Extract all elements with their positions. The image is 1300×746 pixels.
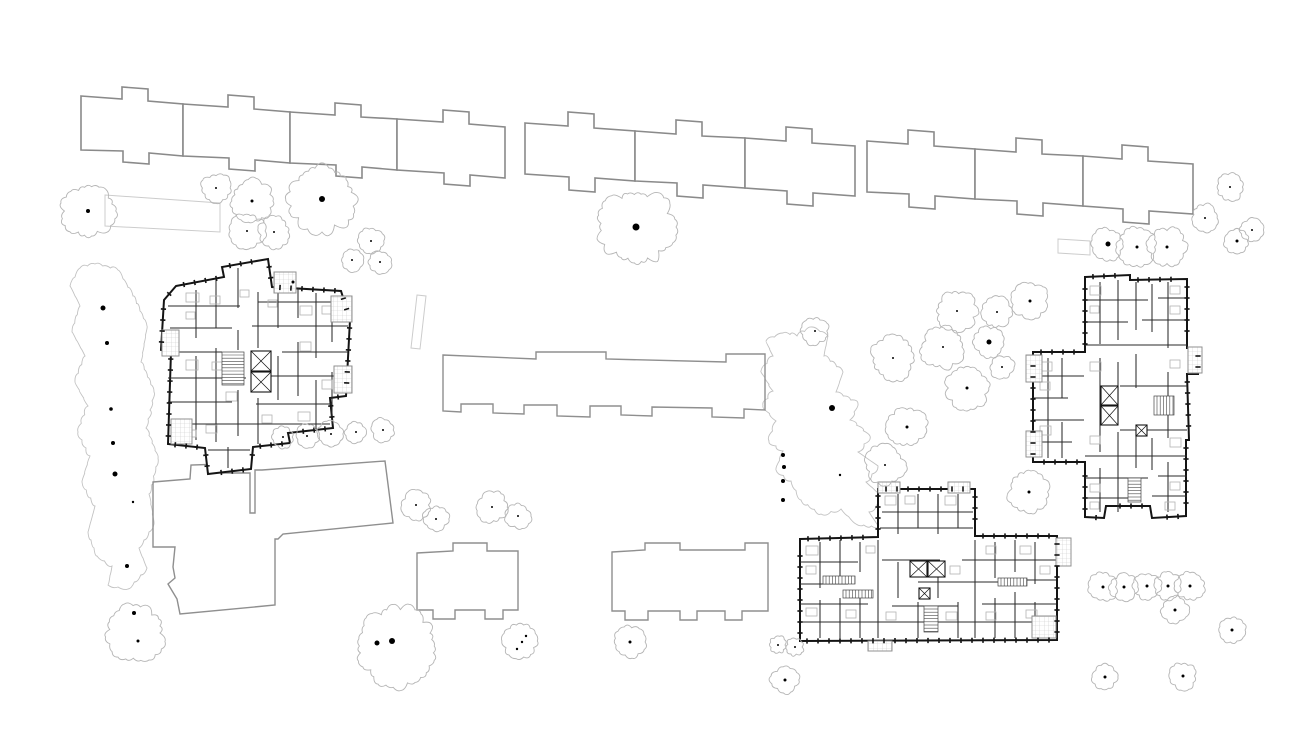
tree-trunk-dot	[942, 346, 944, 348]
shrub-trunk-dot	[105, 341, 109, 345]
window-tick	[329, 417, 334, 418]
balcony-grid	[1026, 355, 1042, 382]
tree-trunk-dot	[966, 387, 969, 390]
tree-trunk-dot	[629, 641, 632, 644]
window-tick	[175, 442, 176, 447]
window-tick	[205, 278, 206, 283]
tree-trunk-dot	[906, 426, 909, 429]
tree-trunk-dot	[814, 330, 816, 332]
tree-trunk-dot	[330, 433, 332, 435]
west-floor-plan	[159, 259, 352, 475]
balcony-grid	[1032, 616, 1056, 638]
pergola-outline	[105, 195, 220, 232]
tree-trunk-dot	[1229, 186, 1231, 188]
balcony-grid	[334, 366, 352, 393]
tree-trunk-dot	[1174, 609, 1177, 612]
tree-trunk-dot	[415, 504, 417, 506]
trunk-dot	[375, 641, 380, 646]
window-tick	[205, 466, 210, 467]
tree-trunk-dot	[351, 259, 353, 261]
trunk-dot	[292, 281, 295, 284]
shrub-trunk-dot	[111, 441, 115, 445]
tree-canopy	[357, 604, 435, 691]
trunk-dot	[521, 641, 523, 643]
context-building	[397, 110, 505, 186]
tree-trunk-dot	[86, 209, 90, 213]
site-plan-svg	[0, 0, 1300, 746]
tree-trunk-dot	[633, 224, 640, 231]
tree-trunk-dot	[382, 429, 384, 431]
tree-trunk-dot	[306, 435, 308, 437]
tree-trunk-dot	[1028, 491, 1031, 494]
shrub-trunk-dot	[839, 474, 841, 476]
tree-trunk-dot	[273, 231, 275, 233]
building-outline	[153, 461, 393, 614]
tree-trunk-dot	[517, 515, 519, 517]
tree-trunk-dot	[215, 187, 217, 189]
shrub-trunk-dot	[781, 453, 785, 457]
context-building	[975, 138, 1083, 216]
window-tick	[314, 428, 315, 433]
balcony-grid	[171, 419, 192, 444]
tree-trunk-dot	[1251, 229, 1253, 231]
window-tick	[282, 441, 283, 446]
tree-trunk-dot	[1231, 629, 1234, 632]
tree-trunk-dot	[1123, 586, 1126, 589]
window-tick	[303, 429, 304, 434]
site-plan-canvas	[0, 0, 1300, 746]
trunk-dot	[132, 611, 136, 615]
window-tick	[240, 261, 241, 266]
context-buildings-layer	[81, 87, 1193, 224]
tree-trunk-dot	[884, 464, 886, 466]
shrub-trunk-dot	[782, 465, 786, 469]
balcony-grid	[1026, 431, 1042, 457]
window-tick	[325, 426, 326, 431]
window-tick	[251, 259, 252, 264]
shrub-trunk-dot	[101, 306, 106, 311]
context-building	[525, 112, 635, 192]
tree-trunk-dot	[355, 431, 357, 433]
building-outline	[612, 543, 768, 620]
tree-trunk-dot	[794, 646, 796, 648]
building-outline	[417, 543, 518, 619]
tree-trunk-dot	[784, 679, 787, 682]
window-tick	[183, 282, 184, 287]
tree-trunk-dot	[1189, 585, 1192, 588]
tree-trunk-dot	[1166, 246, 1169, 249]
window-tick	[197, 445, 198, 450]
tree-canopy	[501, 623, 538, 659]
tree-trunk-dot	[996, 311, 998, 313]
window-tick	[338, 394, 339, 399]
window-tick	[328, 406, 333, 407]
tree-trunk-dot	[1136, 246, 1139, 249]
stair	[998, 578, 1027, 586]
pergola-outline	[1058, 239, 1090, 255]
stair	[1128, 478, 1141, 502]
context-building	[81, 87, 183, 164]
stair	[222, 352, 244, 385]
tree-trunk-dot	[251, 200, 254, 203]
tree-trunk-dot	[956, 310, 958, 312]
tree-trunk-dot	[1029, 300, 1032, 303]
window-tick	[232, 469, 233, 474]
south-floor-plan	[797, 482, 1071, 651]
context-building	[183, 95, 290, 171]
vegetation-patch-outline	[70, 263, 158, 589]
window-tick	[194, 280, 195, 285]
tree-trunk-dot	[370, 240, 372, 242]
tree-canopy	[936, 291, 978, 333]
tree-trunk-dot	[987, 340, 992, 345]
balcony-grid	[1188, 347, 1202, 373]
balcony-grid	[162, 330, 179, 356]
context-building	[1083, 145, 1193, 224]
context-building	[745, 127, 855, 206]
tree-trunk-dot	[1167, 585, 1170, 588]
shrub-trunk-dot	[125, 564, 129, 568]
tree-trunk-dot	[1182, 675, 1185, 678]
pergola-outline	[411, 295, 426, 349]
tree-trunk-dot	[777, 644, 779, 646]
balcony-grid	[868, 641, 892, 651]
floor-plans-layer	[159, 259, 1202, 651]
tree-trunk-dot	[1104, 676, 1107, 679]
tree-trunk-dot	[1204, 217, 1206, 219]
tree-trunk-dot	[435, 518, 437, 520]
tree-trunk-dot	[491, 506, 493, 508]
shrub-trunk-dot	[109, 407, 113, 411]
trunk-dot	[137, 640, 140, 643]
window-tick	[268, 277, 273, 278]
shrub-trunk-dot	[113, 472, 118, 477]
east-floor-plan	[1026, 273, 1202, 520]
shrub-trunk-dot	[132, 501, 134, 503]
shrub-trunk-dot	[781, 479, 785, 483]
window-tick	[186, 443, 187, 448]
window-tick	[221, 470, 222, 475]
building-outline	[443, 352, 765, 418]
trunk-dot	[516, 648, 518, 650]
context-building	[290, 103, 397, 178]
window-tick	[203, 455, 208, 456]
trunk-dot	[389, 638, 395, 644]
tree-trunk-dot	[1146, 585, 1149, 588]
tree-canopy	[920, 325, 965, 370]
tree-trunk-dot	[246, 230, 248, 232]
vegetation-patch-outline	[761, 327, 884, 528]
window-tick	[271, 442, 272, 447]
tree-trunk-dot	[379, 261, 381, 263]
tree-trunk-dot	[319, 196, 325, 202]
tree-trunk-dot	[282, 436, 284, 438]
window-tick	[229, 263, 230, 268]
window-tick	[243, 467, 244, 472]
tree-trunk-dot	[1102, 586, 1105, 589]
window-tick	[260, 444, 261, 449]
tree-trunk-dot	[1236, 240, 1239, 243]
window-tick	[267, 267, 272, 268]
shrub-trunk-dot	[829, 405, 835, 411]
context-building	[635, 120, 745, 198]
tree-canopy	[229, 214, 267, 250]
tree-trunk-dot	[1106, 242, 1111, 247]
shrub-trunk-dot	[781, 498, 785, 502]
balcony-grid	[1056, 538, 1071, 566]
tree-trunk-dot	[1001, 366, 1003, 368]
context-building	[867, 130, 975, 209]
tree-trunk-dot	[892, 357, 894, 359]
trunk-dot	[525, 635, 527, 637]
window-tick	[216, 276, 217, 281]
